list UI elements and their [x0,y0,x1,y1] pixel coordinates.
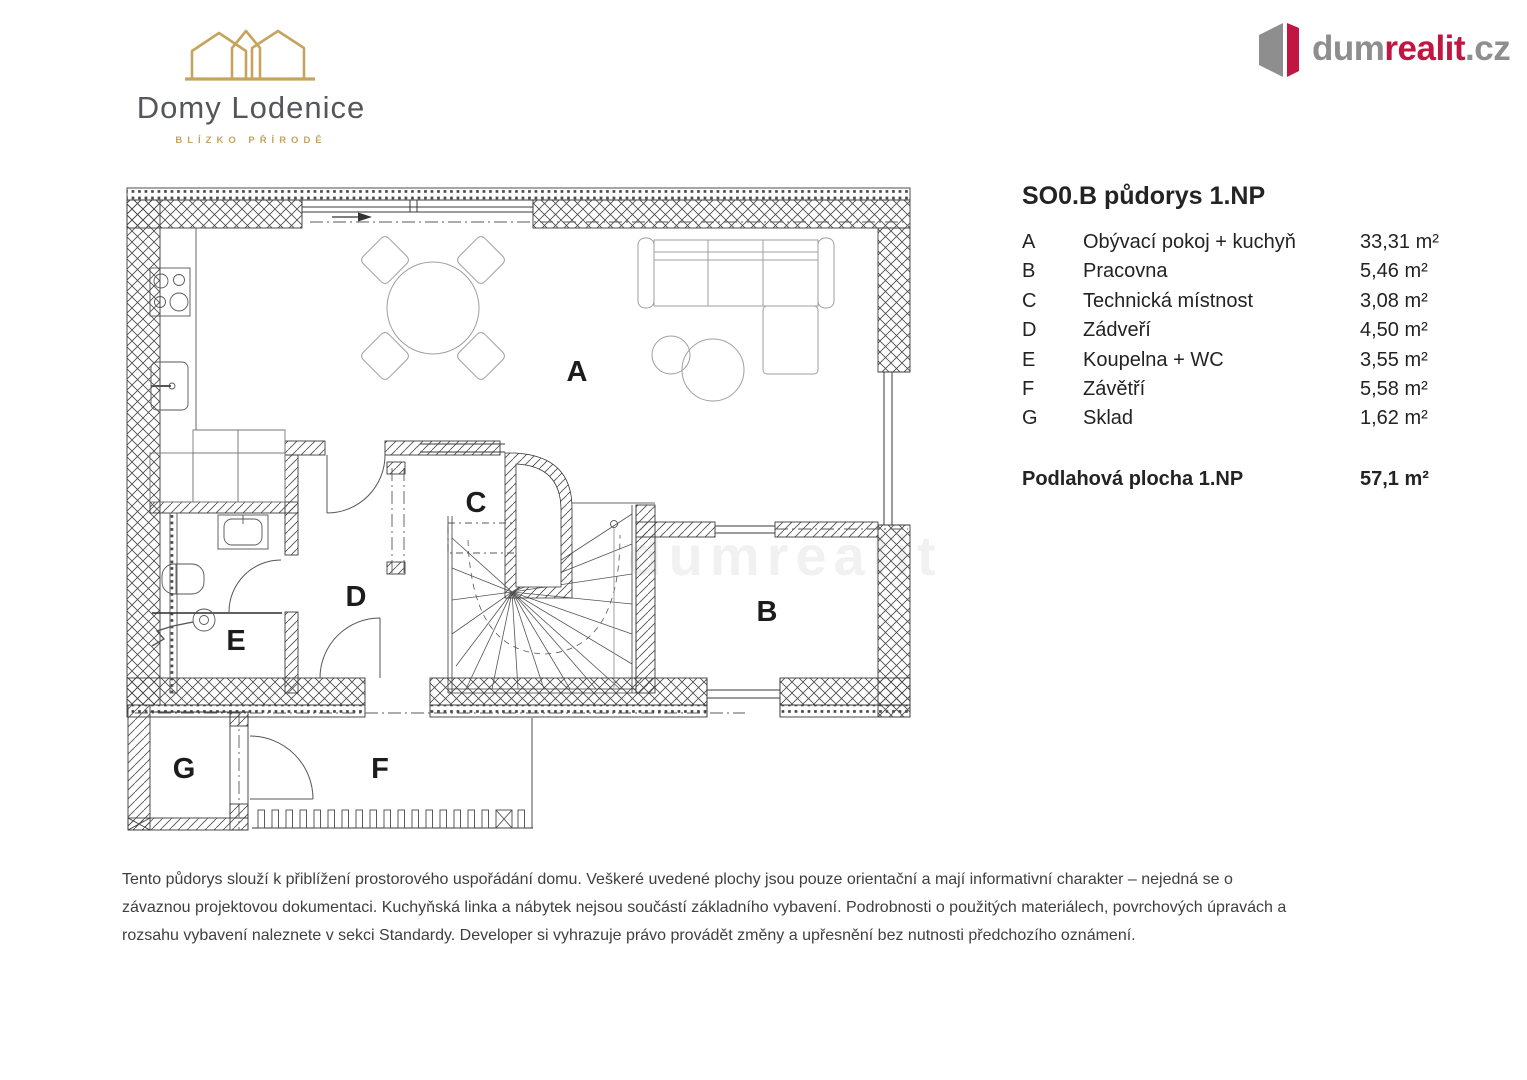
room-label-g: G [173,753,196,785]
floor-plan-page: Domy Lodenice BLÍZKO PŘÍRODĚ dumrealit.c… [0,0,1527,1080]
room-label-b: B [757,596,778,628]
room-label-a: A [567,356,588,388]
furniture [360,235,834,401]
room-label-c: C [466,487,487,519]
room-label-d: D [346,581,367,613]
disclaimer-line-3: rozsahu vybavení naleznete v sekci Stand… [122,922,1482,950]
bathroom-fixtures [152,513,282,693]
room-label-e: E [226,625,245,657]
disclaimer-line-2: závaznou projektovou dokumentaci. Kuchyň… [122,894,1482,922]
disclaimer-line-1: Tento půdorys slouží k přiblížení prosto… [122,866,1482,894]
room-label-f: F [371,753,389,785]
entrance-arrow-icon [332,213,372,222]
kitchen-fixtures [150,228,285,502]
disclaimer-text: Tento půdorys slouží k přiblížení prosto… [122,866,1482,950]
